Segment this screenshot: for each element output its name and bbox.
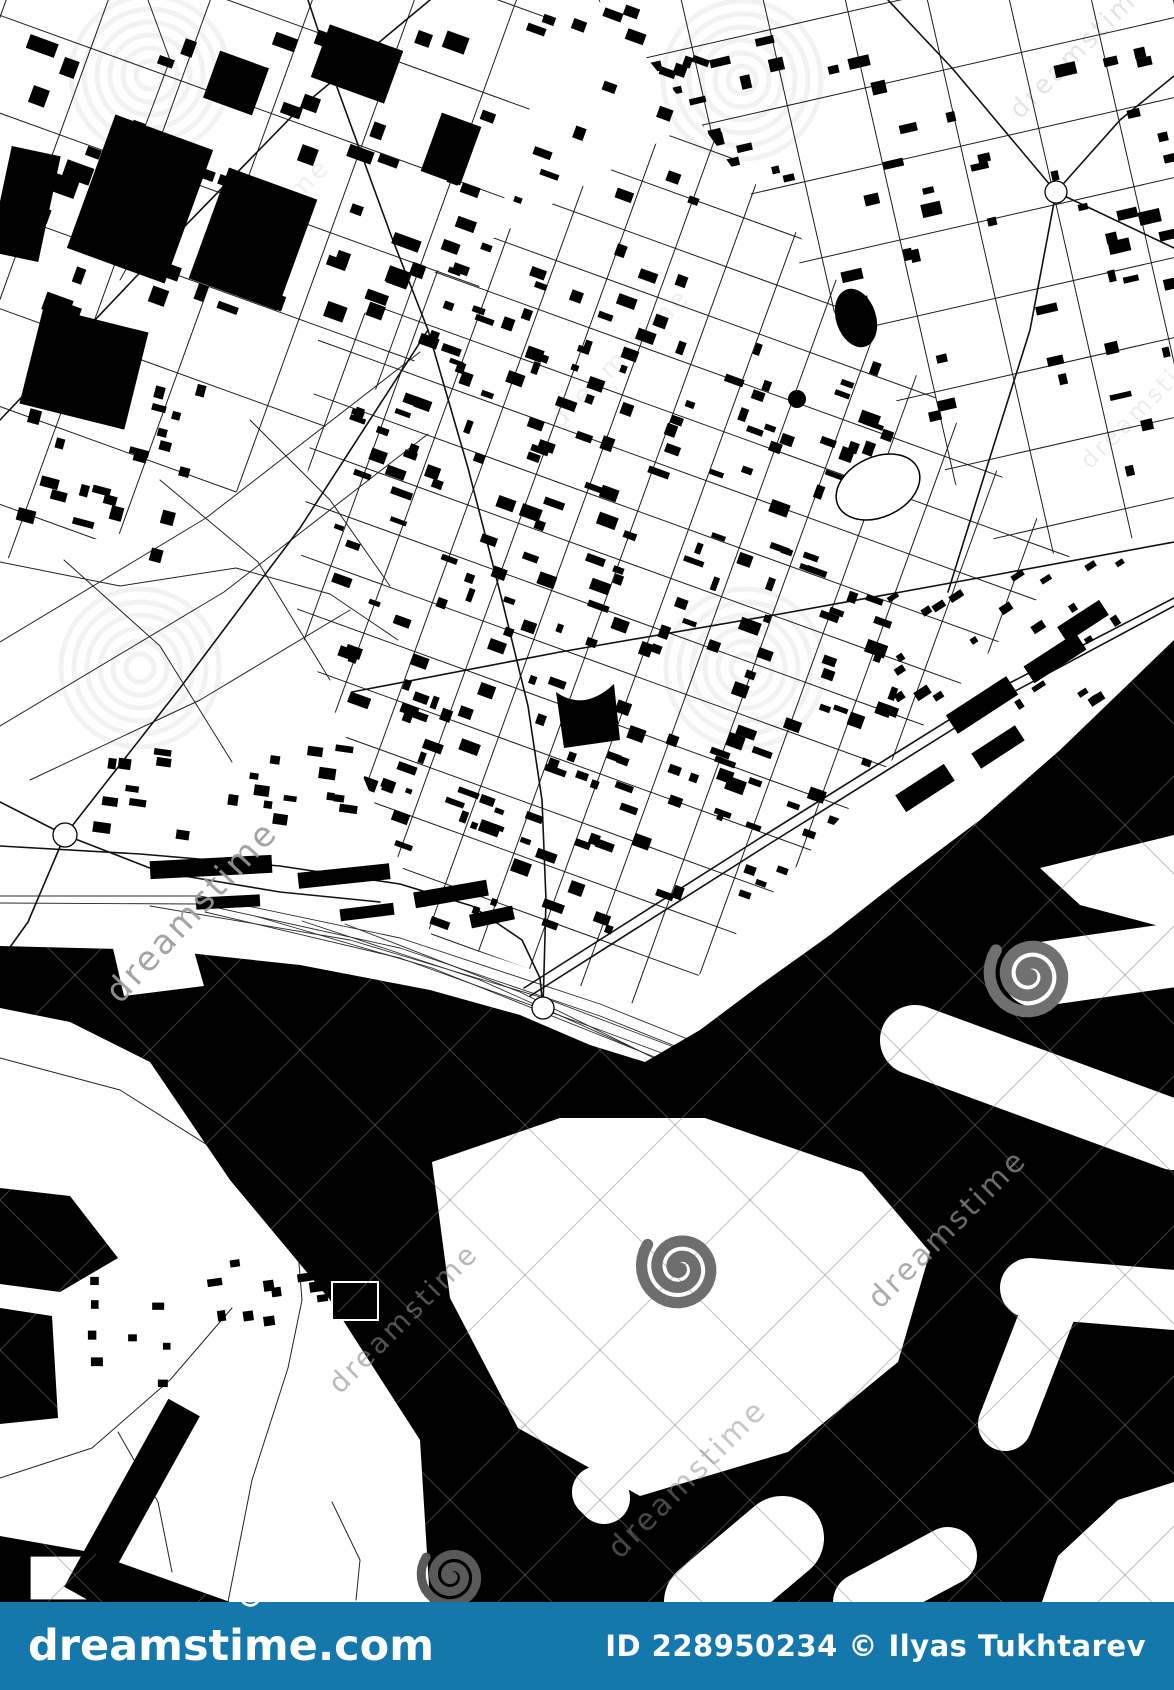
dreamstime-logo: dreamstime.com — [28, 1621, 434, 1671]
city-map-graphic: dreamstimedreamstimedreamstimedreamstime… — [0, 0, 1174, 1602]
footer-bar: dreamstime.com ID 228950234 © Ilyas Tukh… — [0, 1602, 1174, 1690]
dreamstime-logo-text: dreamstime.com — [28, 1621, 434, 1671]
dreamstime-spiral-icon — [236, 1581, 266, 1611]
image-credit-text: ID 228950234 © Ilyas Tukhtarev — [605, 1629, 1146, 1663]
stock-map-image: dreamstimedreamstimedreamstimedreamstime… — [0, 0, 1174, 1690]
